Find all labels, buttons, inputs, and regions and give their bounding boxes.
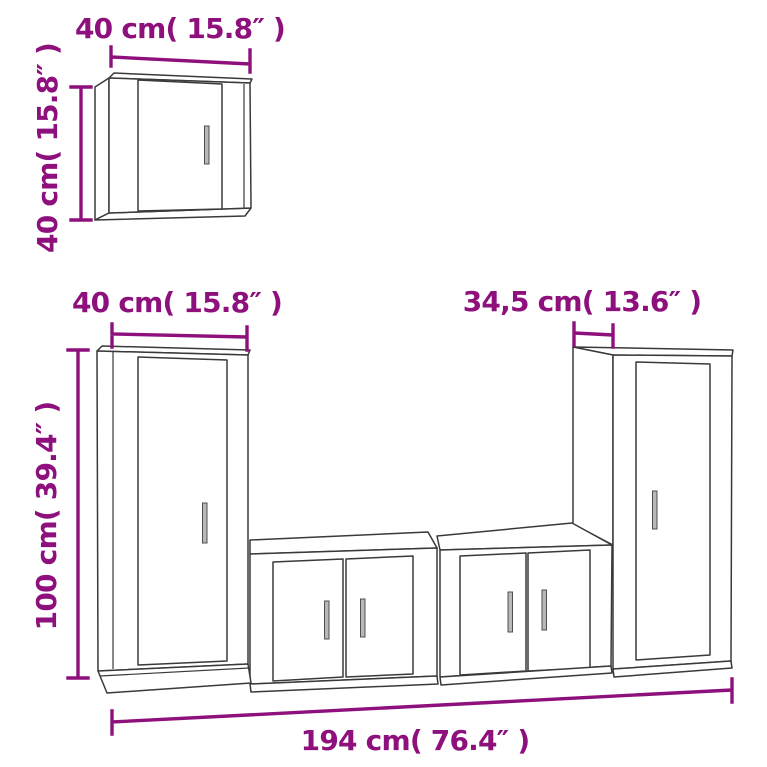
door-handle bbox=[361, 599, 366, 637]
cabinet-door-left bbox=[460, 553, 526, 675]
left-low-cabinet bbox=[250, 532, 438, 692]
dimension-line bbox=[68, 350, 88, 678]
cabinet-door-left bbox=[273, 559, 343, 681]
door-handle bbox=[205, 126, 210, 164]
dim-tall-cabinet-height: 100 cm( 39.4″ ) bbox=[30, 350, 88, 678]
cabinet-door-right bbox=[346, 556, 413, 677]
dimension-line bbox=[574, 323, 613, 347]
dimension-line bbox=[111, 47, 250, 72]
diagram-canvas: 40 cm( 15.8″ ) 40 cm( 15.8″ ) 40 cm( 15.… bbox=[0, 0, 767, 767]
cabinet-side-panel bbox=[95, 78, 109, 220]
right-low-cabinet bbox=[437, 523, 612, 685]
dim-total-width: 194 cm( 76.4″ ) bbox=[112, 679, 732, 757]
wall-cabinet bbox=[95, 73, 252, 220]
door-handle bbox=[203, 503, 208, 543]
furniture-dimension-diagram: 40 cm( 15.8″ ) 40 cm( 15.8″ ) 40 cm( 15.… bbox=[0, 0, 767, 767]
dimension-line bbox=[71, 87, 91, 220]
cabinet-door bbox=[138, 357, 227, 665]
cabinet-side-panel bbox=[573, 347, 613, 545]
dimension-label: 40 cm( 15.8″ ) bbox=[72, 286, 282, 319]
dim-right-cabinet-depth: 34,5 cm( 13.6″ ) bbox=[463, 285, 702, 347]
dimension-label: 100 cm( 39.4″ ) bbox=[30, 402, 63, 631]
dim-tall-cabinet-width: 40 cm( 15.8″ ) bbox=[72, 286, 282, 350]
door-handle bbox=[542, 590, 547, 630]
dimension-label: 194 cm( 76.4″ ) bbox=[301, 724, 530, 757]
dim-wall-cabinet-width: 40 cm( 15.8″ ) bbox=[75, 12, 285, 72]
door-handle bbox=[653, 491, 658, 529]
door-handle bbox=[325, 601, 330, 639]
left-tall-cabinet bbox=[97, 346, 251, 693]
door-handle bbox=[508, 592, 513, 632]
cabinet-door-right bbox=[528, 550, 590, 671]
dim-wall-cabinet-height: 40 cm( 15.8″ ) bbox=[31, 43, 91, 253]
dimension-label: 34,5 cm( 13.6″ ) bbox=[463, 285, 702, 318]
dimension-label: 40 cm( 15.8″ ) bbox=[31, 43, 64, 253]
cabinet-door bbox=[636, 362, 710, 660]
dimension-label: 40 cm( 15.8″ ) bbox=[75, 12, 285, 45]
